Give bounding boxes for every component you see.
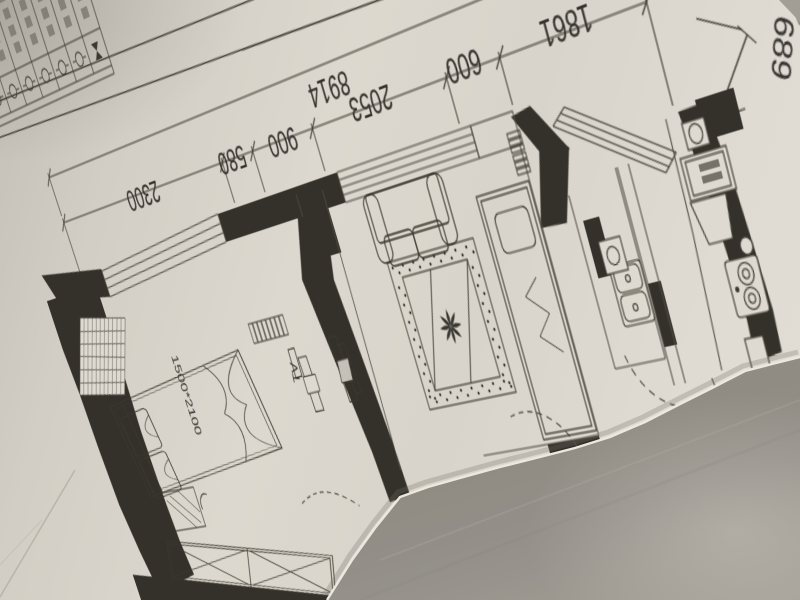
svg-text:689: 689 <box>766 12 800 84</box>
svg-text:1500*2100: 1500*2100 <box>169 354 204 437</box>
svg-text:900: 900 <box>263 118 301 163</box>
svg-text:2300: 2300 <box>122 173 163 216</box>
svg-text:1861: 1861 <box>536 0 597 54</box>
svg-text:580: 580 <box>214 137 250 180</box>
svg-text:2053: 2053 <box>345 76 396 128</box>
